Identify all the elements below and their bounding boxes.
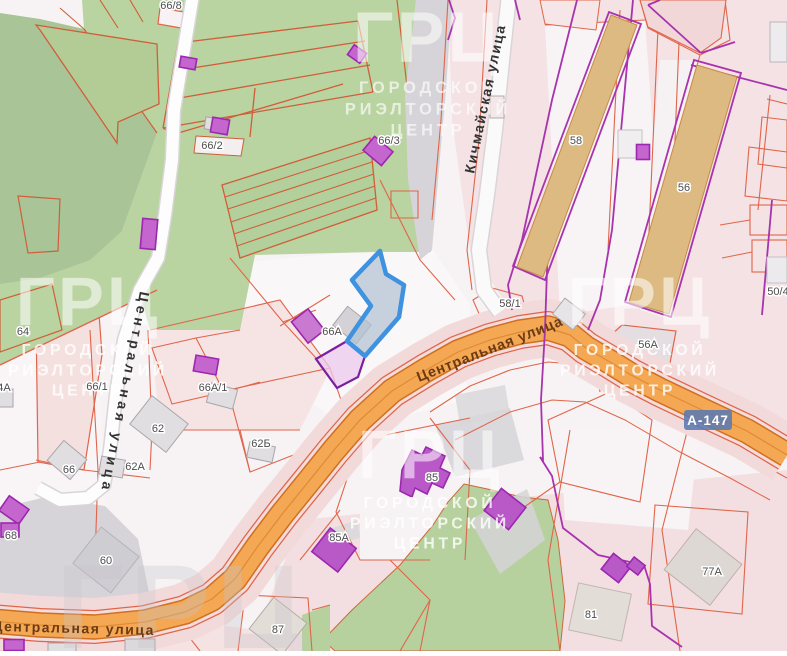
svg-text:РИЭЛТОРСКИЙ: РИЭЛТОРСКИЙ — [560, 360, 720, 379]
svg-text:62: 62 — [152, 423, 164, 435]
svg-text:ЦЕНТР: ЦЕНТР — [390, 121, 465, 139]
svg-text:64: 64 — [17, 326, 29, 338]
svg-text:60: 60 — [100, 555, 112, 567]
svg-text:А-147: А-147 — [687, 413, 729, 428]
svg-text:66А/1: 66А/1 — [199, 382, 228, 394]
svg-text:81: 81 — [585, 609, 597, 621]
svg-text:50/4: 50/4 — [767, 286, 787, 298]
svg-text:56: 56 — [678, 182, 690, 194]
svg-text:56А: 56А — [638, 339, 658, 351]
svg-text:85А: 85А — [329, 532, 349, 544]
svg-text:87: 87 — [272, 624, 284, 636]
svg-text:62А: 62А — [125, 461, 145, 473]
svg-text:ЦЕНТР: ЦЕНТР — [604, 383, 676, 400]
svg-text:77А: 77А — [702, 566, 722, 578]
svg-text:ГРЦ: ГРЦ — [568, 263, 713, 340]
svg-text:66/1: 66/1 — [86, 381, 107, 393]
svg-text:62Б: 62Б — [251, 438, 270, 450]
svg-text:66А: 66А — [322, 326, 342, 338]
svg-text:ГОРОДСКОЙ: ГОРОДСКОЙ — [364, 493, 497, 512]
svg-text:66/8: 66/8 — [160, 0, 181, 12]
svg-text:66/2: 66/2 — [201, 140, 222, 152]
svg-text:85: 85 — [426, 472, 438, 484]
svg-text:ГОРОДСКОЙ: ГОРОДСКОЙ — [359, 78, 497, 97]
svg-text:ГРЦ: ГРЦ — [353, 0, 503, 78]
svg-text:66: 66 — [63, 464, 75, 476]
svg-text:58/1: 58/1 — [499, 298, 520, 310]
svg-text:58: 58 — [570, 135, 582, 147]
svg-text:ЦЕНТР: ЦЕНТР — [394, 536, 466, 553]
svg-text:4А: 4А — [0, 382, 11, 394]
svg-text:66/3: 66/3 — [378, 135, 399, 147]
svg-text:РИЭЛТОРСКИЙ: РИЭЛТОРСКИЙ — [350, 513, 510, 532]
svg-text:68: 68 — [5, 530, 17, 542]
svg-text:РИЭЛТОРСКИЙ: РИЭЛТОРСКИЙ — [8, 360, 168, 379]
